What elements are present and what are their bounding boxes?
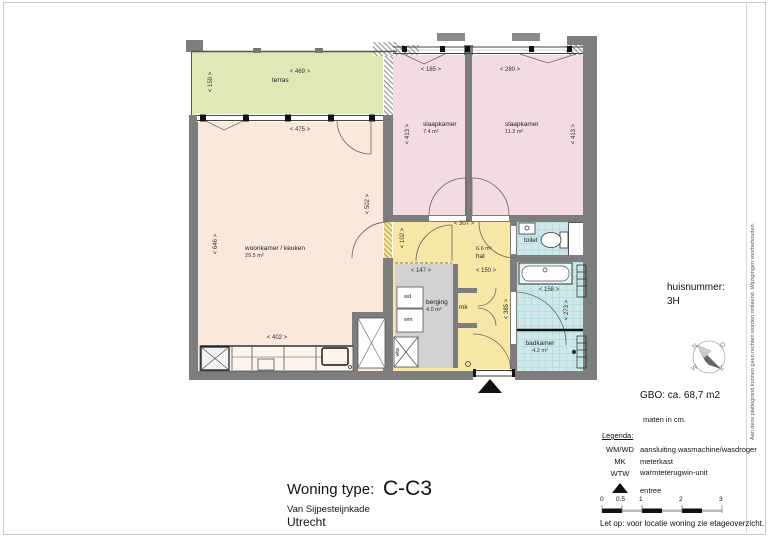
- dim-413b: < 413 >: [571, 112, 577, 156]
- huisnummer-value: 3H: [667, 296, 680, 307]
- legend-desc-wtw: warmteterugwin-unit: [640, 468, 708, 477]
- scale-tick-05: 0.5: [616, 496, 625, 503]
- label-mk: mk: [459, 304, 468, 312]
- band-stub-center: [464, 45, 473, 55]
- band-stub-left: [393, 45, 419, 55]
- window-band-bedrooms: [393, 45, 583, 54]
- wall-mk-top: [453, 288, 477, 293]
- label-wtw: wtw: [395, 342, 401, 362]
- terras-corner-block-left: [186, 40, 203, 52]
- label-wd: wd: [404, 294, 411, 301]
- dim-469: < 469 >: [270, 69, 330, 75]
- label-woonkamer: woonkamer / keuken 29.5 m²: [245, 245, 305, 260]
- wall-central-hatch: [384, 52, 393, 115]
- dim-185: < 185 >: [401, 67, 461, 73]
- scale-tick-3: 3: [719, 496, 723, 503]
- legend-title: Legenda:: [602, 431, 633, 440]
- desteyn-logo: DE STEYN: [0, 430, 110, 537]
- dim-159: < 159 >: [208, 60, 214, 104]
- wall-mk-bottom: [453, 323, 477, 328]
- dim-280: < 280 >: [480, 67, 540, 73]
- wall-toilet-bottom: [510, 255, 583, 262]
- wall-berging-right: [453, 264, 458, 368]
- door-gap-badkamer: [511, 292, 516, 344]
- label-berging: berging 4.0 m²: [426, 299, 448, 314]
- maten-text: maten in cm.: [643, 415, 686, 424]
- room-berging: [395, 264, 453, 368]
- label-toilet: toilet: [524, 237, 538, 245]
- disclaimer-side-text: Aan deze plattegrond kunnen geen rechten…: [750, 180, 756, 440]
- wall-right-exterior: [583, 44, 597, 380]
- scale-tick-0: 0: [600, 496, 604, 503]
- door-gap-toilet: [511, 226, 516, 254]
- legend-abbr-wmwd: WM/WD: [600, 445, 640, 454]
- top-block-2: [512, 33, 540, 41]
- legend-entree-label: entree: [640, 486, 661, 495]
- dim-475: < 475 >: [270, 127, 330, 133]
- city-text: Utrecht: [287, 515, 326, 529]
- label-wm: wm: [404, 317, 413, 324]
- dim-273: < 273 >: [564, 288, 570, 332]
- dim-413a: < 413 >: [405, 112, 411, 156]
- shaft-box: [358, 318, 385, 368]
- dim-158: < 158 >: [519, 287, 579, 293]
- wall-central-upper: [383, 115, 393, 222]
- legend-desc-wmwd: aansluiting wasmachine/wasdroger: [640, 445, 757, 454]
- legend-desc-mk: meterkast: [640, 457, 673, 466]
- window-band-terras-woonkamer: [197, 114, 383, 122]
- legend-abbr-wtw: WTW: [600, 469, 640, 478]
- dim-147: < 147 >: [391, 268, 451, 274]
- dim-307: < 307 >: [434, 221, 494, 227]
- dim-502: < 502 >: [365, 182, 371, 226]
- label-badkamer: badkamer 4.2 m²: [518, 340, 562, 355]
- note-text: Let op: voor locatie woning zie etageove…: [600, 519, 764, 528]
- gbo-text: GBO: ca. 68,7 m2: [640, 390, 720, 401]
- legend-abbr-mk: MK: [600, 457, 640, 466]
- entree-threshold: [473, 369, 515, 380]
- scale-tick-1: 1: [639, 496, 643, 503]
- dim-402: < 402 >: [247, 335, 307, 341]
- dim-102: < 102 >: [400, 216, 406, 260]
- floorplan-sheet: N O W Z < 469 > < 475 > < 402 > < 185 > …: [0, 0, 768, 537]
- dim-385: < 385 >: [504, 287, 510, 331]
- label-slaapkamer-1: slaapkamer 7.4 m²: [423, 121, 457, 136]
- scale-tick-2: 2: [679, 496, 683, 503]
- wall-bedroom-partition: [465, 55, 472, 215]
- wall-left-exterior: [189, 115, 198, 380]
- woning-type-label: Woning type:: [287, 481, 374, 498]
- label-hal: 6.6 m² hal: [476, 246, 492, 261]
- address-text: Van Sijpesteijnkade: [287, 504, 370, 515]
- dim-150: < 150 >: [456, 268, 516, 274]
- dim-646: < 646 >: [213, 222, 219, 266]
- top-corner-block: [567, 36, 597, 45]
- door-threshold-woonkamer-hal: [384, 222, 392, 258]
- top-block-1: [437, 33, 465, 41]
- label-slaapkamer-2: slaapkamer 11.2 m²: [505, 121, 539, 136]
- wall-bottom-left: [189, 371, 473, 380]
- label-terras: terras: [272, 77, 289, 85]
- woning-type-value: C-C3: [383, 477, 432, 501]
- huisnummer-label: huisnummer:: [667, 282, 725, 293]
- band-stub-right: [566, 45, 583, 55]
